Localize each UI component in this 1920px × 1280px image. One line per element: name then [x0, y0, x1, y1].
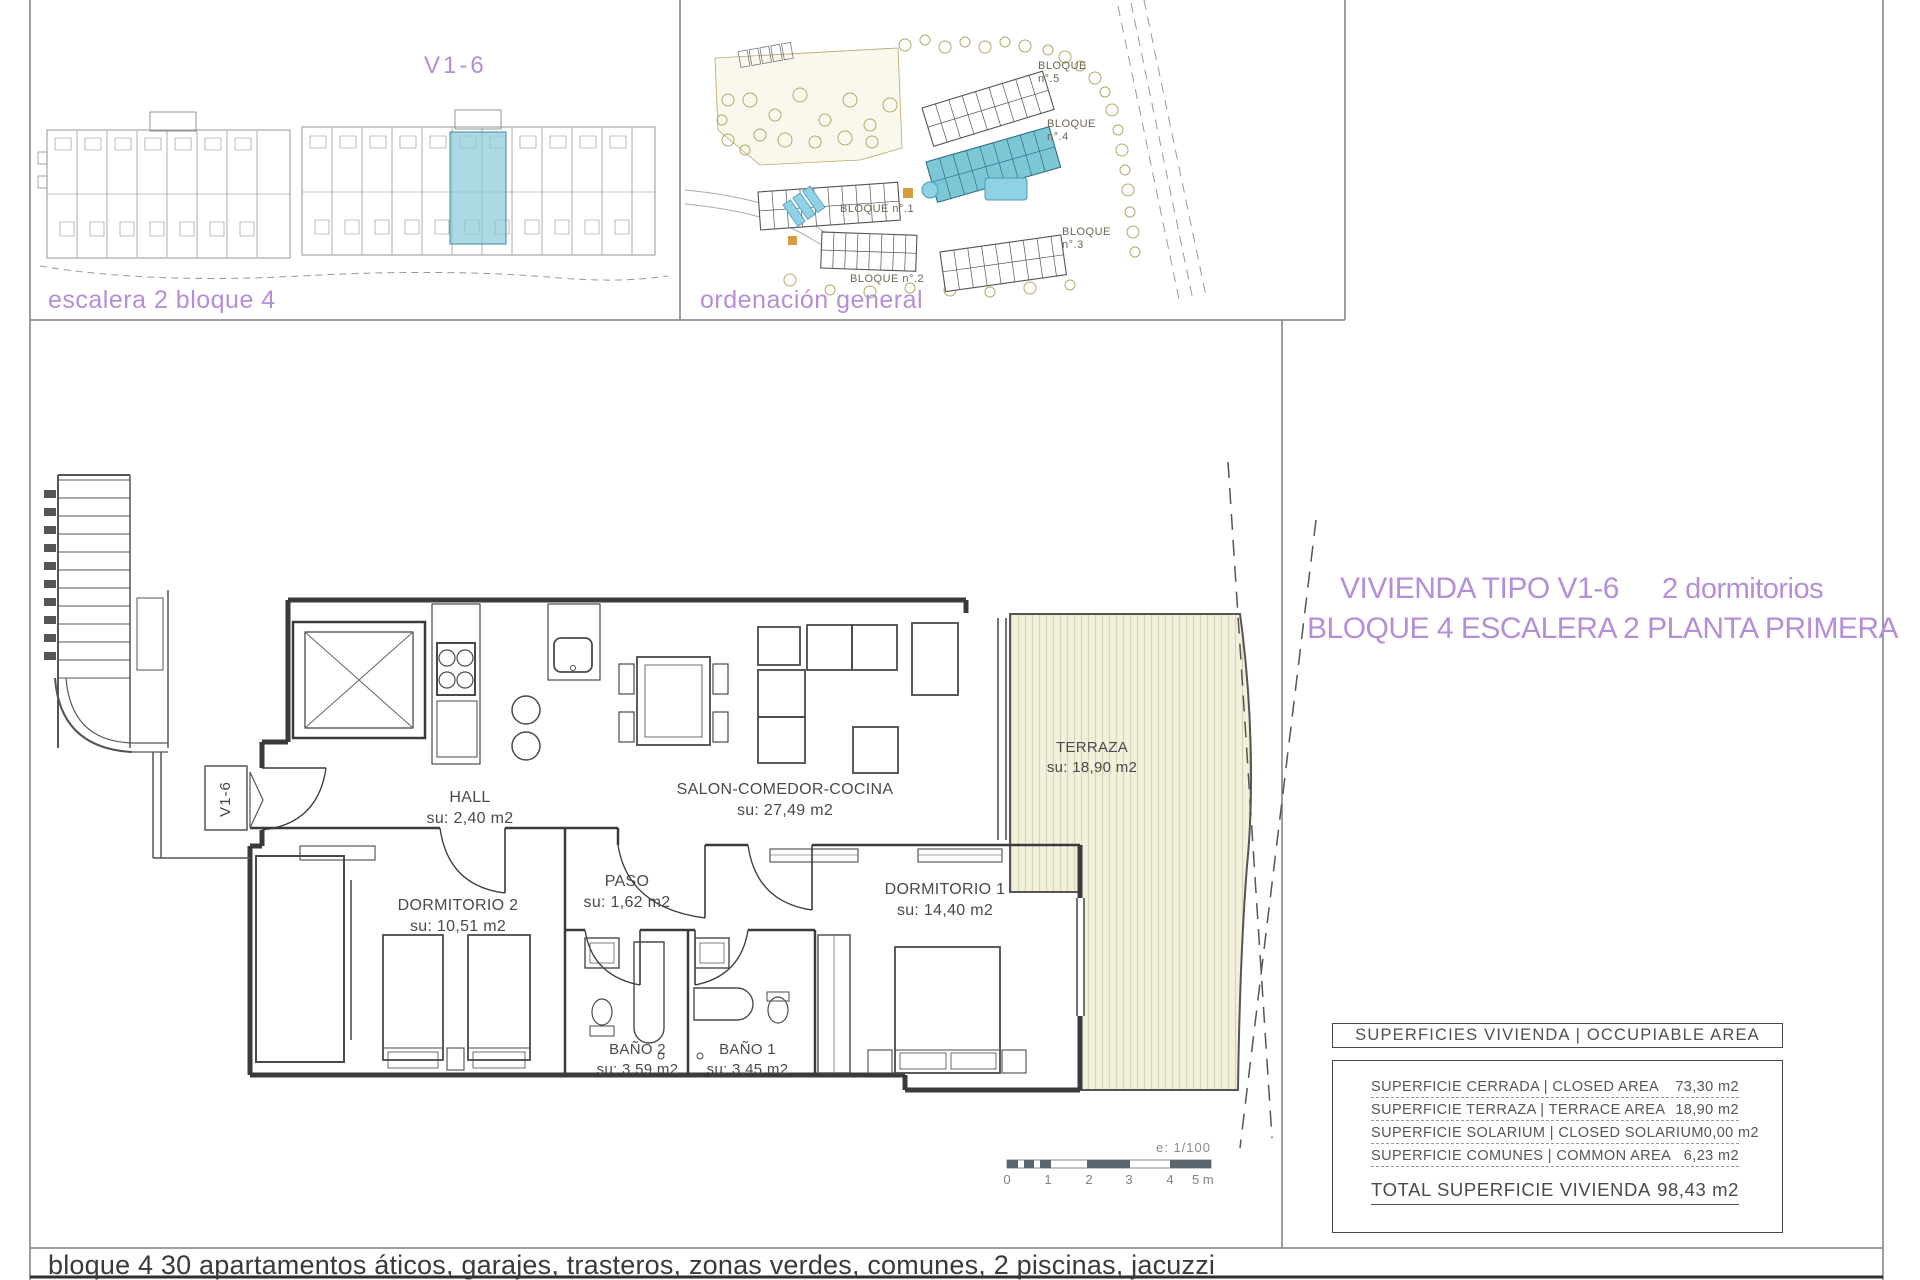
- plan-sheet: { "page": { "footer": "bloque 4 30 apart…: [0, 0, 1920, 1280]
- scale-ratio-label: e: 1/100: [1121, 1140, 1211, 1155]
- scale-tick-3: 3: [1114, 1172, 1144, 1187]
- panel-siteplan-caption: ordenación general: [700, 286, 923, 315]
- dining-table: [619, 657, 728, 745]
- sheet-footer-caption: bloque 4 30 apartamentos áticos, garajes…: [48, 1250, 1215, 1280]
- table-row-total: TOTAL SUPERFICIE VIVIENDA 98,43 m2: [1371, 1178, 1739, 1205]
- table-row-terraza: SUPERFICIE TERRAZA | TERRACE AREA 18,90 …: [1371, 1098, 1739, 1121]
- room-label-hall: HALL su: 2,40 m2: [400, 788, 540, 830]
- room-label-salon: SALON-COMEDOR-COCINA su: 27,49 m2: [660, 780, 910, 822]
- scale-tick-4: 4: [1155, 1172, 1185, 1187]
- siteplan-label-bloque4: BLOQUE n°.4: [1047, 118, 1101, 144]
- room-label-paso: PASO su: 1,62 m2: [557, 872, 697, 914]
- siteplan-label-bloque2: BLOQUE n°.2: [850, 273, 924, 286]
- bloque-3: [940, 235, 1066, 292]
- site-plan: [685, 0, 1206, 304]
- panel-unit-label: V1-6: [424, 52, 487, 80]
- scale-bar: [1007, 1160, 1211, 1168]
- living-sofa: [758, 623, 958, 773]
- table-row-comunes: SUPERFICIE COMUNES | COMMON AREA 6,23 m2: [1371, 1144, 1739, 1167]
- room-label-terraza: TERRAZA su: 18,90 m2: [1012, 738, 1172, 777]
- scale-tick-1: 1: [1033, 1172, 1063, 1187]
- table-row-cerrada: SUPERFICIE CERRADA | CLOSED AREA 73,30 m…: [1371, 1075, 1739, 1098]
- room-label-dormitorio1: DORMITORIO 1 su: 14,40 m2: [845, 880, 1045, 922]
- kitchen: [432, 604, 600, 764]
- unit-marker-label: V1-6: [216, 769, 236, 829]
- room-label-dormitorio2: DORMITORIO 2 su: 10,51 m2: [358, 896, 558, 938]
- title-line1: VIVIENDA TIPO V1-6: [1340, 572, 1619, 606]
- areas-table-header: SUPERFICIES VIVIENDA | OCCUPIABLE AREA: [1332, 1023, 1783, 1048]
- siteplan-label-bloque5: BLOQUE n°.5: [1038, 60, 1092, 86]
- siteplan-label-bloque1: BLOQUE n°.1: [840, 203, 914, 216]
- title-line2: BLOQUE 4 ESCALERA 2 PLANTA PRIMERA: [1307, 612, 1898, 646]
- areas-table: SUPERFICIE CERRADA | CLOSED AREA 73,30 m…: [1332, 1060, 1783, 1233]
- siteplan-label-bloque3: BLOQUE n°.3: [1062, 226, 1116, 252]
- panel-building-caption: escalera 2 bloque 4: [48, 286, 276, 315]
- building-key-plan: [38, 110, 668, 280]
- dorm1-furniture: [818, 935, 1026, 1073]
- interior-walls: [250, 828, 1080, 1075]
- scale-tick-0: 0: [992, 1172, 1022, 1187]
- dorm2-furniture: [256, 846, 530, 1070]
- highlighted-unit: [450, 132, 506, 244]
- elevator-shaft: [293, 622, 425, 738]
- title-line1-right: 2 dormitorios: [1662, 573, 1823, 606]
- room-label-bano1: BAÑO 1 su: 3,45 m2: [680, 1040, 815, 1079]
- scale-tick-5: 5 m: [1192, 1172, 1222, 1187]
- terrace-deck: [1010, 614, 1251, 1090]
- sideboards: [770, 849, 1002, 862]
- bloque-2: [821, 232, 917, 271]
- scale-tick-2: 2: [1074, 1172, 1104, 1187]
- table-row-solarium: SUPERFICIE SOLARIUM | CLOSED SOLARIUM 0,…: [1371, 1121, 1739, 1144]
